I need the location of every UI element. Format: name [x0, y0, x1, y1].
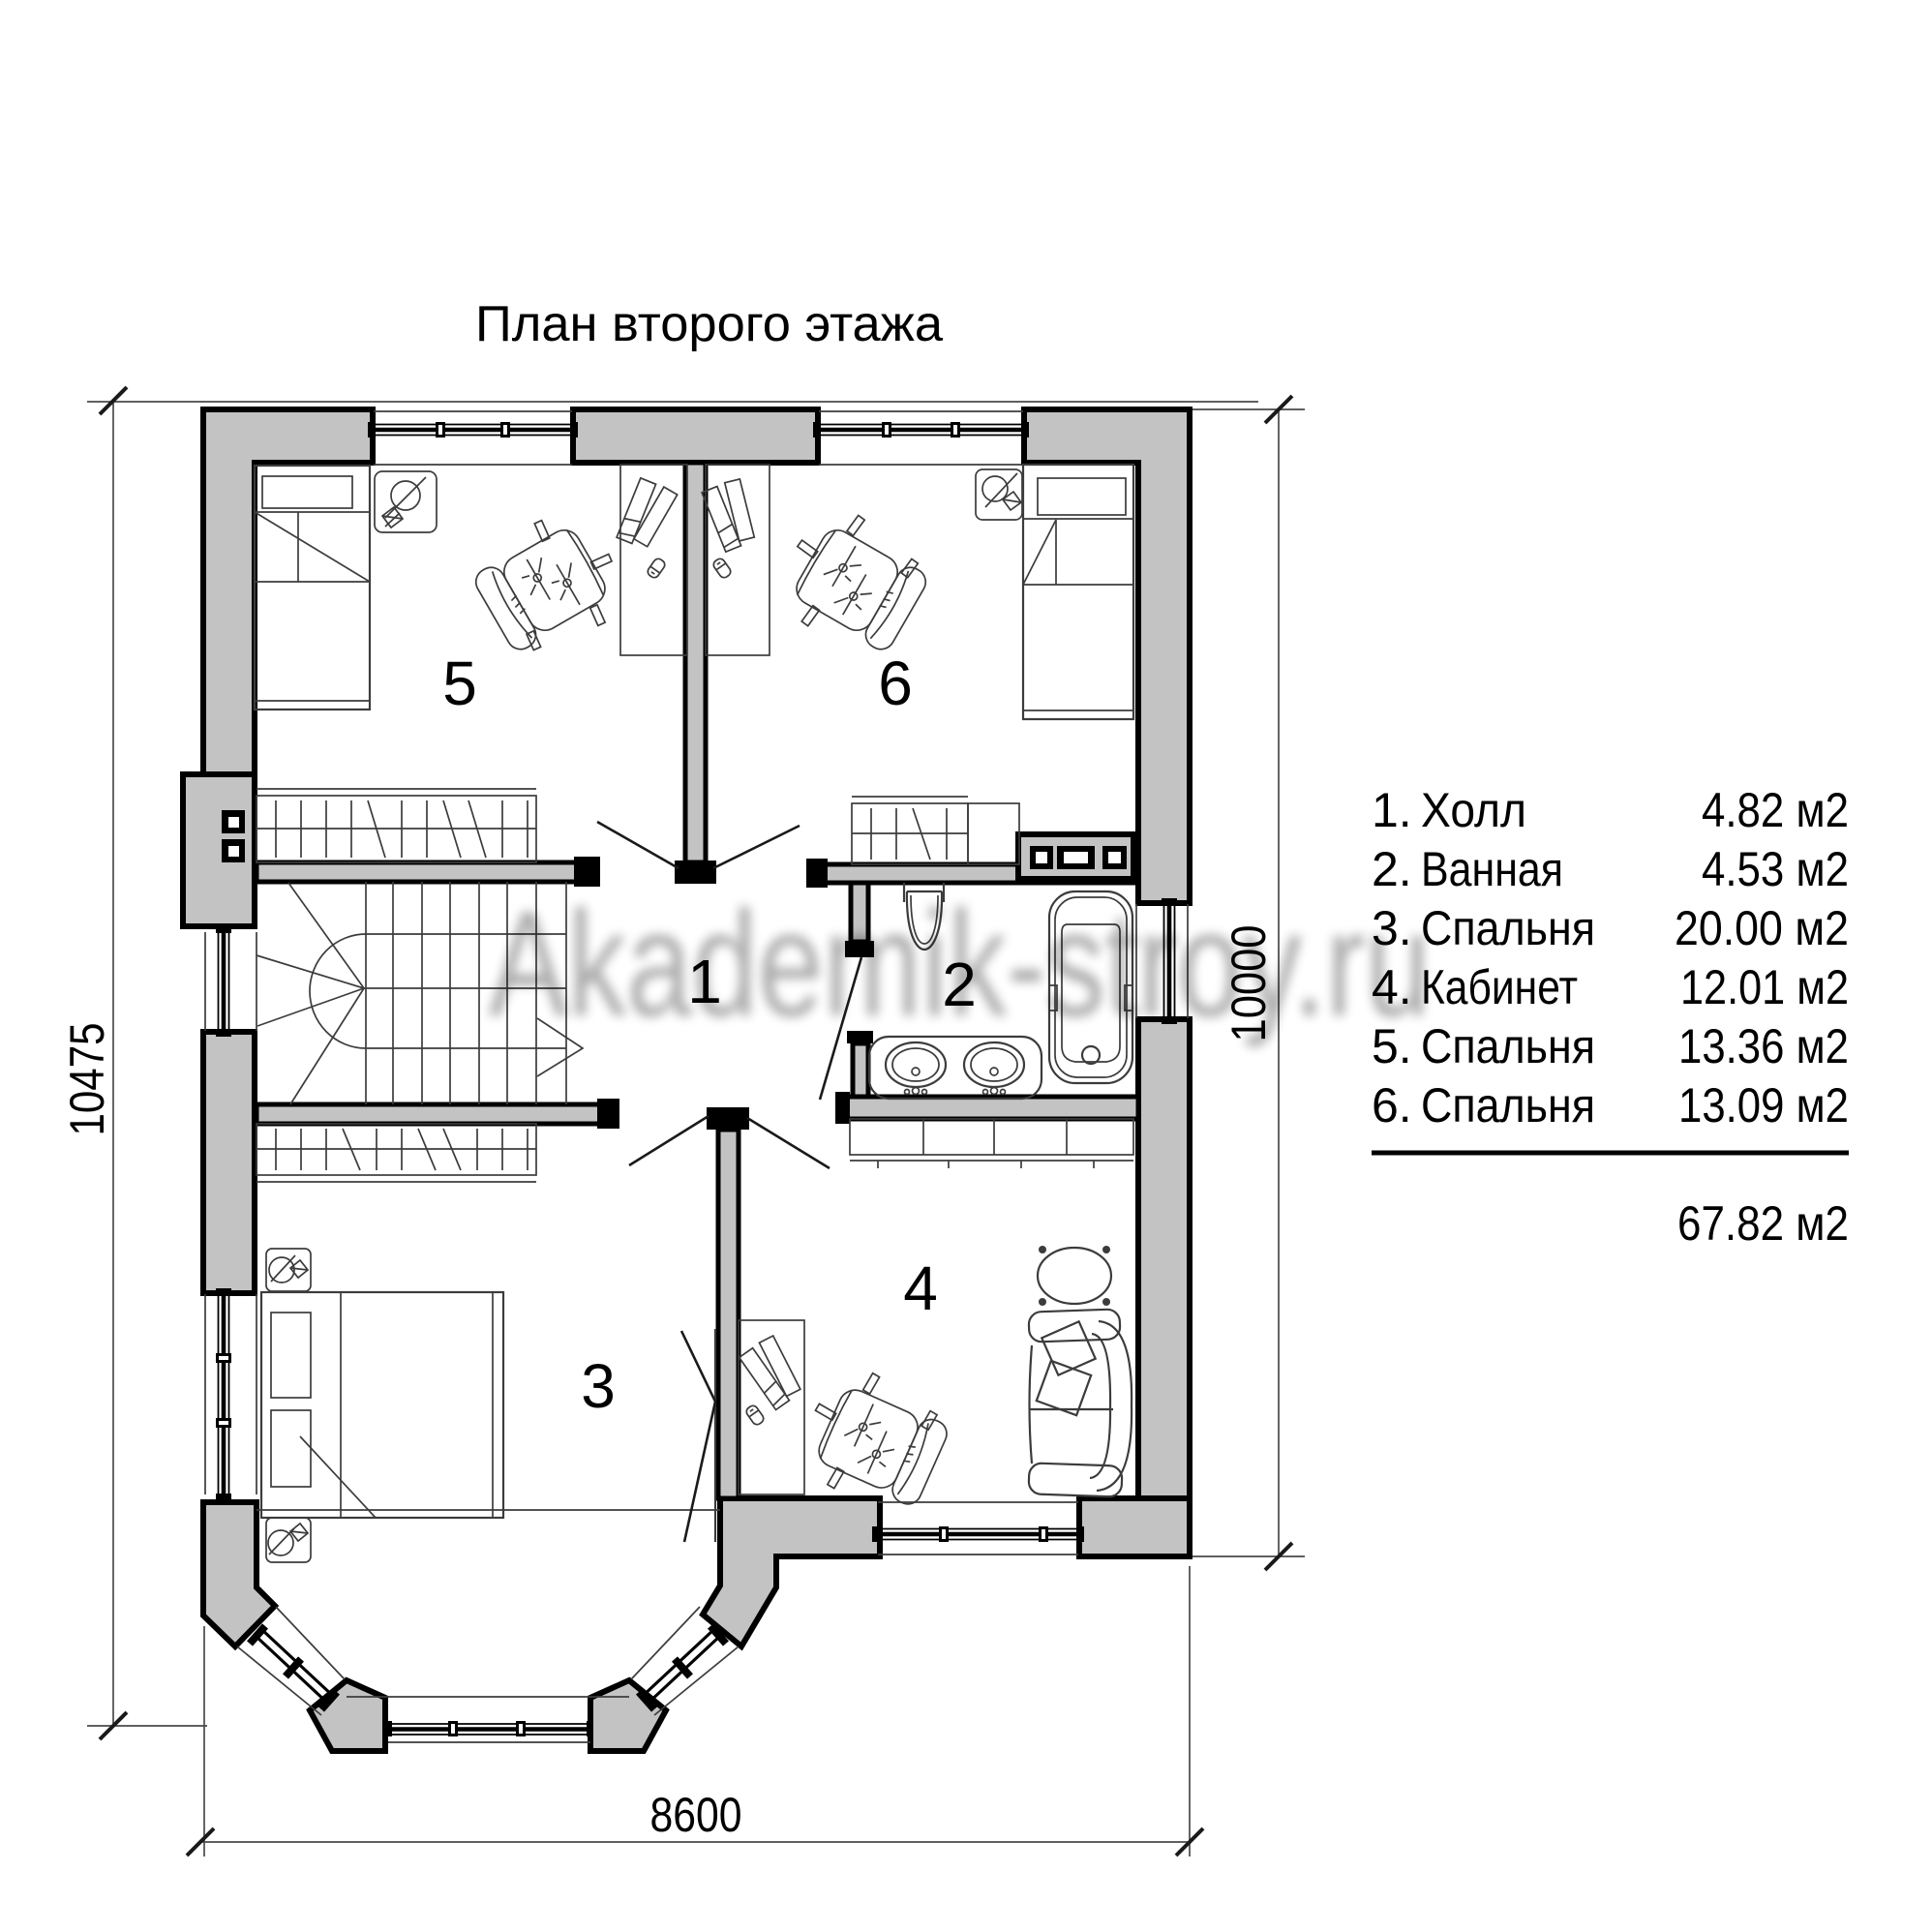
svg-text:Спальня: Спальня [1421, 1019, 1595, 1073]
svg-text:13.09 м2: 13.09 м2 [1678, 1078, 1849, 1132]
svg-text:1.: 1. [1372, 783, 1412, 837]
svg-text:1: 1 [687, 947, 722, 1016]
svg-text:13.36 м2: 13.36 м2 [1678, 1019, 1849, 1073]
svg-text:4.53 м2: 4.53 м2 [1702, 842, 1849, 896]
svg-text:Холл: Холл [1421, 783, 1526, 837]
svg-text:4.: 4. [1372, 960, 1412, 1014]
svg-text:Ванная: Ванная [1421, 842, 1563, 896]
svg-text:Кабинет: Кабинет [1421, 960, 1578, 1014]
svg-text:2: 2 [942, 950, 977, 1019]
svg-text:4.82 м2: 4.82 м2 [1702, 783, 1849, 837]
svg-text:10475: 10475 [60, 1023, 114, 1136]
svg-text:12.01 м2: 12.01 м2 [1680, 960, 1849, 1014]
svg-text:20.00 м2: 20.00 м2 [1675, 901, 1849, 955]
svg-text:6.: 6. [1372, 1078, 1412, 1132]
svg-text:План второго этажа: План второго этажа [475, 296, 943, 352]
svg-text:Спальня: Спальня [1421, 901, 1595, 955]
svg-text:4: 4 [903, 1253, 938, 1323]
svg-text:5: 5 [442, 649, 477, 718]
svg-text:3: 3 [581, 1351, 616, 1421]
svg-text:3.: 3. [1372, 901, 1412, 955]
svg-text:5.: 5. [1372, 1019, 1412, 1073]
svg-text:Спальня: Спальня [1421, 1078, 1595, 1132]
svg-text:8600: 8600 [650, 1788, 742, 1842]
svg-text:67.82 м2: 67.82 м2 [1677, 1196, 1849, 1251]
svg-text:2.: 2. [1372, 842, 1412, 896]
svg-text:6: 6 [878, 649, 913, 718]
